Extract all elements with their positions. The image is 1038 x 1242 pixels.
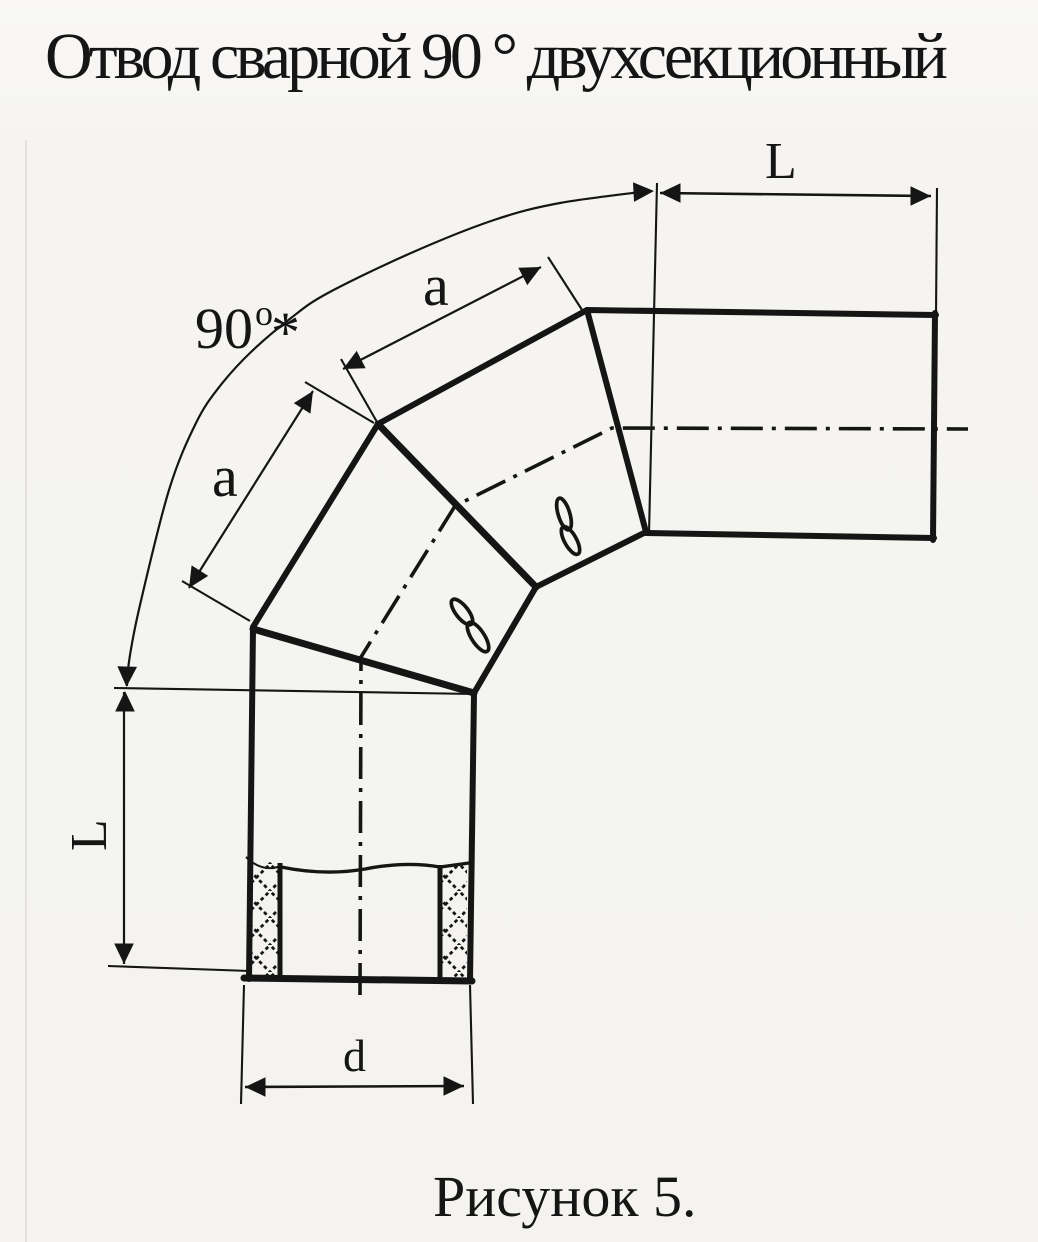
svg-text:a: a — [212, 444, 238, 509]
svg-text:L: L — [765, 133, 797, 190]
svg-text:a: a — [423, 253, 449, 318]
svg-text:d: d — [343, 1030, 366, 1081]
svg-text:L: L — [61, 819, 118, 851]
svg-text:90: 90 — [195, 296, 253, 361]
svg-text:*: * — [271, 300, 300, 365]
svg-text:Рисунок 5.: Рисунок 5. — [433, 1164, 697, 1229]
svg-text:Отвод сварной 90 ° двухсекцион: Отвод сварной 90 ° двухсекционный — [45, 20, 947, 93]
